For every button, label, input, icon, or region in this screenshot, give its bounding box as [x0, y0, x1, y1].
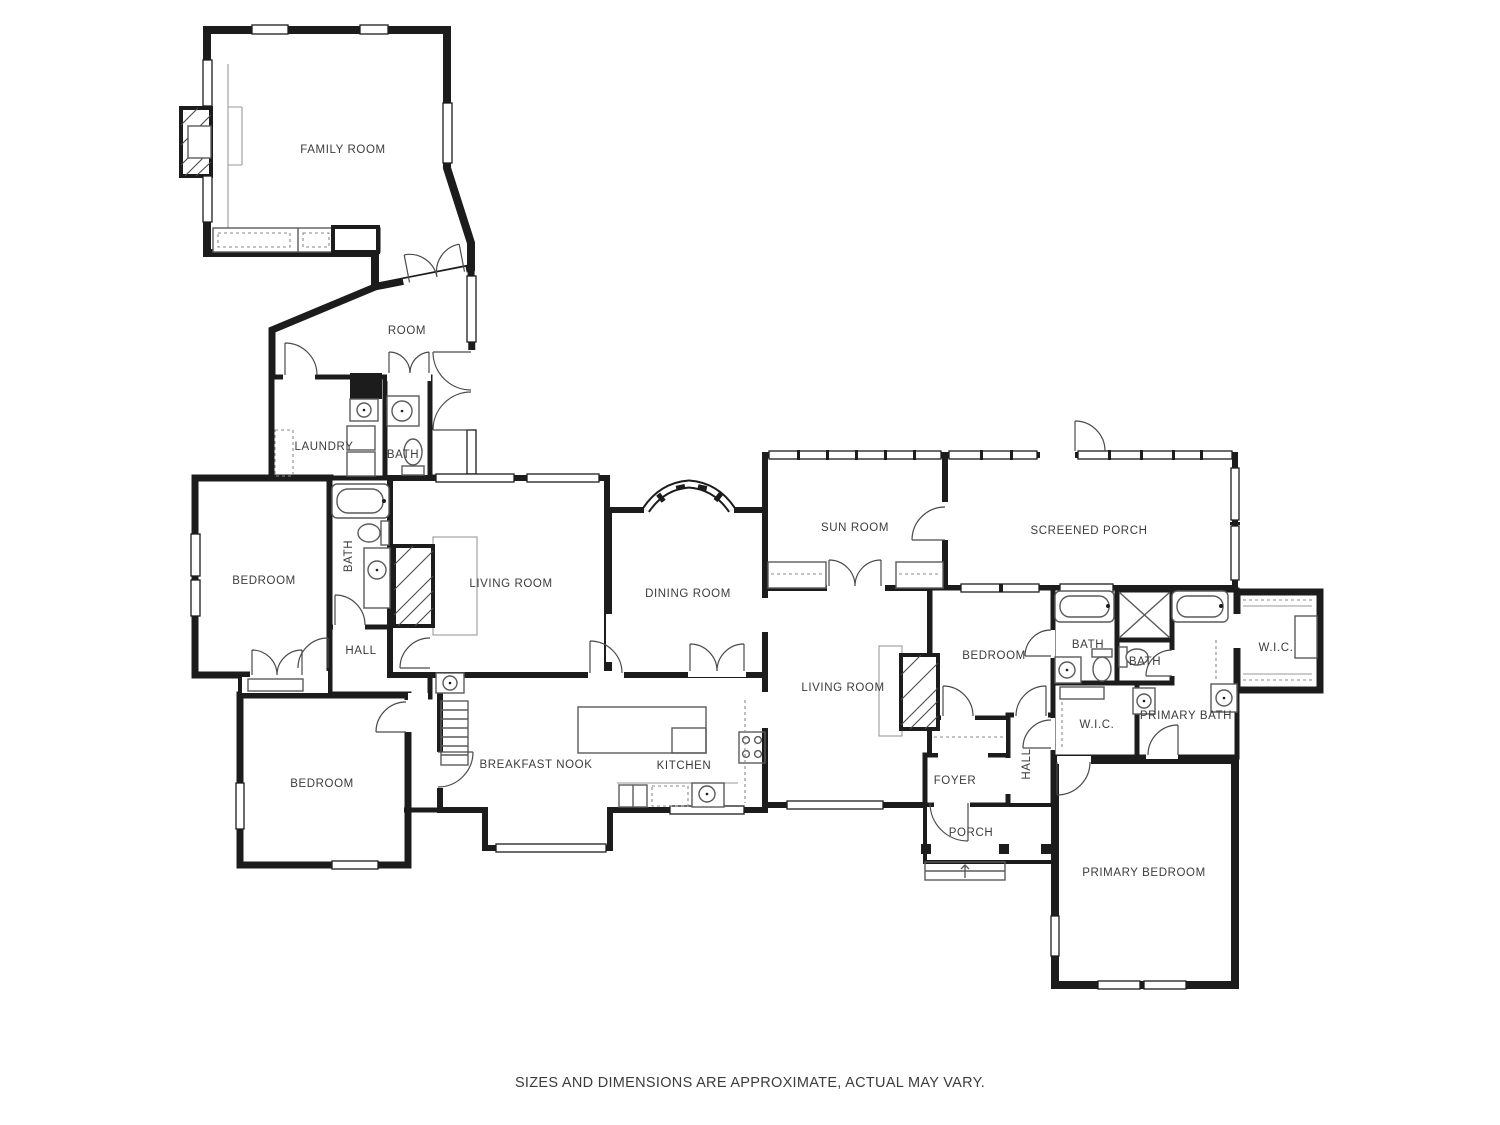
room-label-porch: PORCH	[949, 827, 994, 839]
room-label-bath-upper: BATH	[387, 449, 419, 461]
room-label-screened-porch: SCREENED PORCH	[1030, 525, 1147, 537]
room-label-family-room: FAMILY ROOM	[300, 144, 385, 156]
disclaimer-text: SIZES AND DIMENSIONS ARE APPROXIMATE, AC…	[515, 1075, 985, 1091]
room-label-bath-mid: BATH	[1072, 639, 1104, 651]
laundry-sink	[350, 399, 378, 421]
bath-mid-toilet	[1092, 649, 1112, 681]
room-label-kitchen: KITCHEN	[657, 760, 712, 772]
room-label-primary-bedroom: PRIMARY BEDROOM	[1082, 867, 1206, 879]
primary-bath-sink-2	[1211, 684, 1237, 712]
hall-west-bench	[248, 679, 303, 691]
room-label-room: ROOM	[388, 325, 426, 337]
room-label-bedroom-mid: BEDROOM	[962, 650, 1026, 662]
floor-plan-page: FAMILY ROOM ROOM LAUNDRY BATH BEDROOM BA…	[0, 0, 1500, 1125]
room-label-living-east: LIVING ROOM	[801, 682, 884, 694]
kitchen-sink	[692, 783, 724, 807]
bath-mid-sink	[1055, 657, 1081, 683]
chimney	[350, 373, 382, 399]
bath-west-sink	[364, 548, 390, 608]
room-label-bath-west: BATH	[343, 540, 355, 572]
room-label-wic-mid: W.I.C.	[1080, 719, 1115, 731]
room-label-bedroom-west: BEDROOM	[232, 575, 296, 587]
room-label-bedroom-sw: BEDROOM	[290, 778, 354, 790]
room-label-hall-west: HALL	[345, 645, 376, 657]
primary-bath-tub	[1172, 591, 1228, 622]
bar-sink	[436, 673, 464, 693]
room-label-breakfast-nook: BREAKFAST NOOK	[480, 759, 593, 771]
screened-porch-door	[1075, 421, 1105, 451]
room-label-wic-east: W.I.C.	[1259, 642, 1294, 654]
floor-plan-canvas: FAMILY ROOM ROOM LAUNDRY BATH BEDROOM BA…	[0, 0, 1500, 1125]
room-label-laundry: LAUNDRY	[295, 441, 354, 453]
bath-west-tub	[332, 484, 389, 518]
porch-steps	[925, 862, 1005, 880]
room-label-bath-small: BATH	[1129, 656, 1161, 668]
room-label-hall-east: HALL	[1021, 748, 1033, 779]
family-window-seat	[213, 227, 380, 252]
room-label-foyer: FOYER	[934, 775, 977, 787]
room-label-living-west: LIVING ROOM	[469, 578, 552, 590]
bath-mid-tub	[1055, 591, 1114, 622]
room-label-primary-bath: PRIMARY BATH	[1140, 710, 1232, 722]
room-screened-porch-walls	[945, 455, 1235, 588]
bath-upper-sink	[387, 396, 419, 426]
room-label-sun-room: SUN ROOM	[821, 522, 889, 534]
room-wic-east-walls	[1237, 592, 1320, 690]
room-label-dining: DINING ROOM	[645, 588, 731, 600]
